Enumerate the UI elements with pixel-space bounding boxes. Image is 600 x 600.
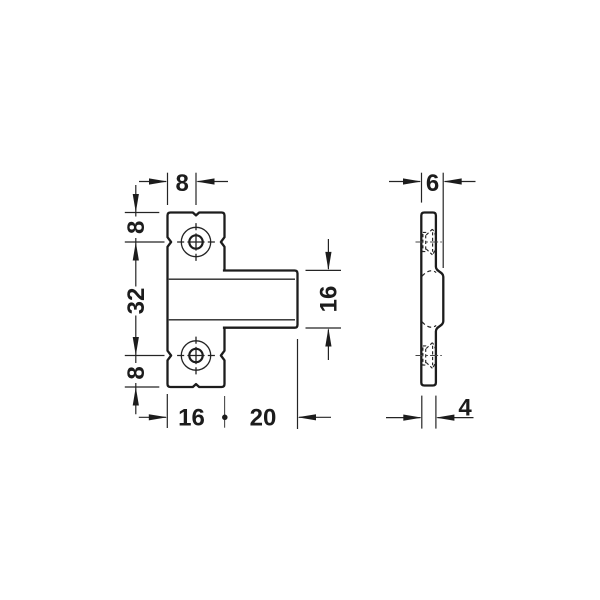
- svg-text:8: 8: [123, 366, 150, 379]
- svg-text:6: 6: [426, 170, 439, 197]
- svg-text:8: 8: [176, 170, 189, 197]
- svg-text:32: 32: [123, 288, 150, 315]
- svg-text:20: 20: [250, 404, 277, 431]
- svg-text:16: 16: [316, 286, 343, 313]
- svg-text:16: 16: [178, 404, 205, 431]
- svg-text:8: 8: [123, 221, 150, 234]
- svg-text:4: 4: [458, 395, 472, 422]
